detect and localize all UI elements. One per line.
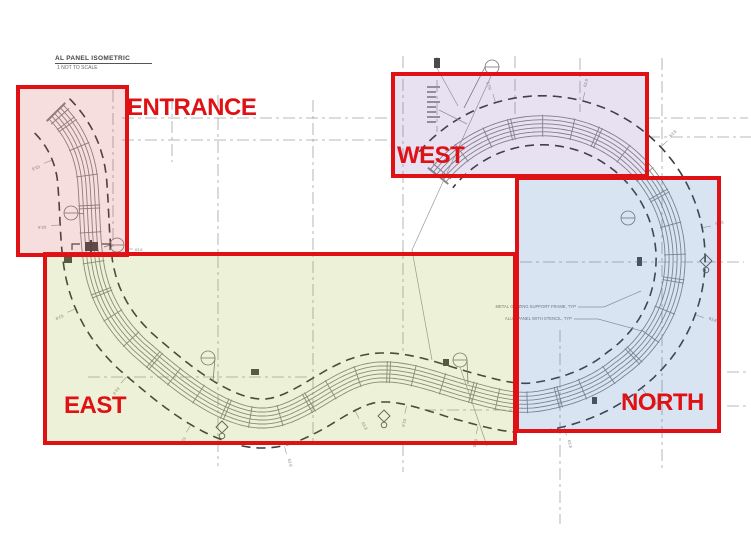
east-label: EAST	[64, 392, 126, 420]
al-panel-plan-page: 63.863.863.863.863.863.863.863.863.863.8…	[0, 0, 751, 542]
entrance-label: ENTRANCE	[127, 94, 256, 122]
west-label: WEST	[397, 142, 464, 170]
drawing-scale-note: 1 NOT TO SCALE	[57, 65, 152, 71]
drawing-title: AL PANEL ISOMETRIC	[55, 55, 152, 64]
title-block: AL PANEL ISOMETRIC 1 NOT TO SCALE	[55, 55, 152, 71]
svg-text:63.8: 63.8	[287, 458, 294, 468]
region-entrance-overlay	[16, 85, 129, 257]
svg-text:63.8: 63.8	[567, 439, 574, 449]
north-label: NORTH	[621, 389, 704, 417]
